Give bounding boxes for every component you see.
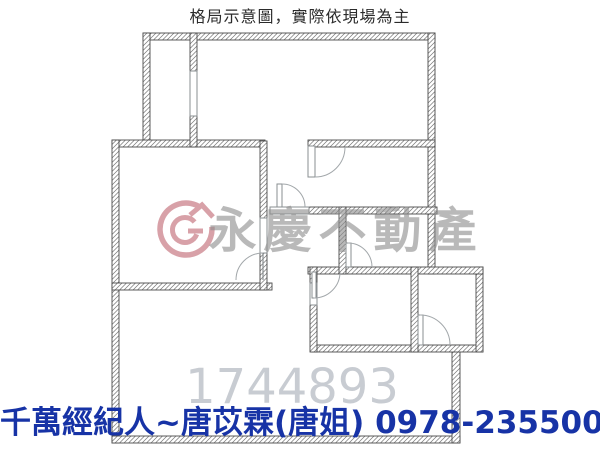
door-swing: [308, 146, 345, 177]
floorplan-page: 格局示意圖，實際依現場為主: [0, 0, 600, 450]
wall-segment: [310, 305, 317, 352]
wall-segment: [143, 33, 150, 145]
floorplan-svg: 永慶不動產 1744893: [0, 0, 600, 450]
wall-segment: [476, 267, 483, 352]
watermark-logo-icon: [160, 203, 213, 255]
wall-segment: [308, 267, 483, 274]
wall-segment: [143, 33, 435, 40]
agent-contact-line: 千萬經紀人~唐苡霖(唐姐) 0978-235500: [0, 401, 600, 445]
window-frame: [190, 71, 197, 116]
wall-segment: [112, 140, 119, 443]
door-swing: [312, 272, 340, 298]
wall-segment: [190, 116, 197, 147]
wall-segment: [112, 140, 265, 147]
watermark-brand-text: 永慶不動產: [208, 203, 483, 259]
wall-segment: [312, 345, 483, 352]
wall-segment: [308, 140, 435, 147]
wall-segment: [112, 283, 272, 290]
wall-segment: [190, 33, 197, 71]
wall-segment: [411, 267, 418, 352]
door-swing: [418, 315, 450, 345]
